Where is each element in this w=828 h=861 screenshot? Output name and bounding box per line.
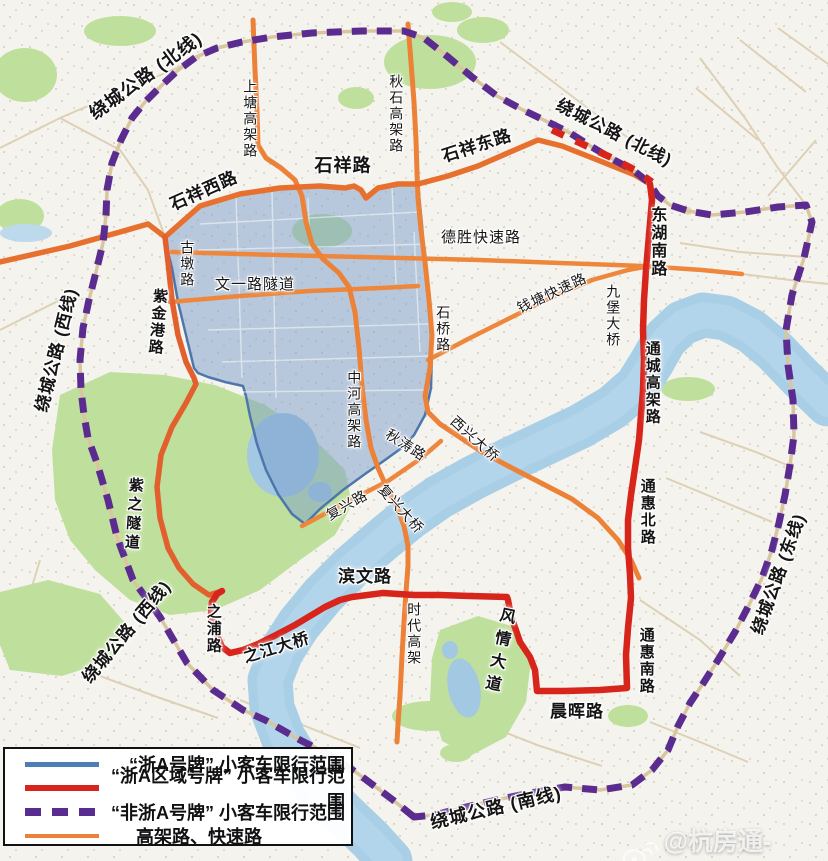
legend-item: “浙A区域号牌” 小客车限行范围	[9, 776, 347, 800]
legend-label: “非浙A号牌” 小客车限行范围	[99, 799, 347, 825]
weibo-icon	[620, 839, 660, 861]
legend-label: 高架路、快速路	[99, 823, 347, 849]
legend-item: “非浙A号牌” 小客车限行范围	[9, 800, 347, 824]
watermark: @杭房通-Louis	[620, 822, 828, 861]
legend-swatch-blue-line	[25, 762, 99, 767]
legend-item: 高架路、快速路	[9, 824, 347, 848]
legend: “浙A号牌” 小客车限行范围 “浙A区域号牌” 小客车限行范围 “非浙A号牌” …	[3, 747, 353, 846]
legend-swatch-purple-dashed-line	[25, 808, 99, 816]
restriction-map-screenshot: 绕城公路 (北线)绕城公路 (北线)绕城公路 (西线)绕城公路 (西线)绕城公路…	[0, 0, 828, 861]
watermark-text: @杭房通-Louis	[664, 822, 828, 861]
map-canvas	[0, 0, 828, 861]
legend-swatch-orange-line	[25, 834, 99, 838]
small-water	[0, 224, 52, 242]
legend-swatch-red-line	[25, 785, 99, 791]
